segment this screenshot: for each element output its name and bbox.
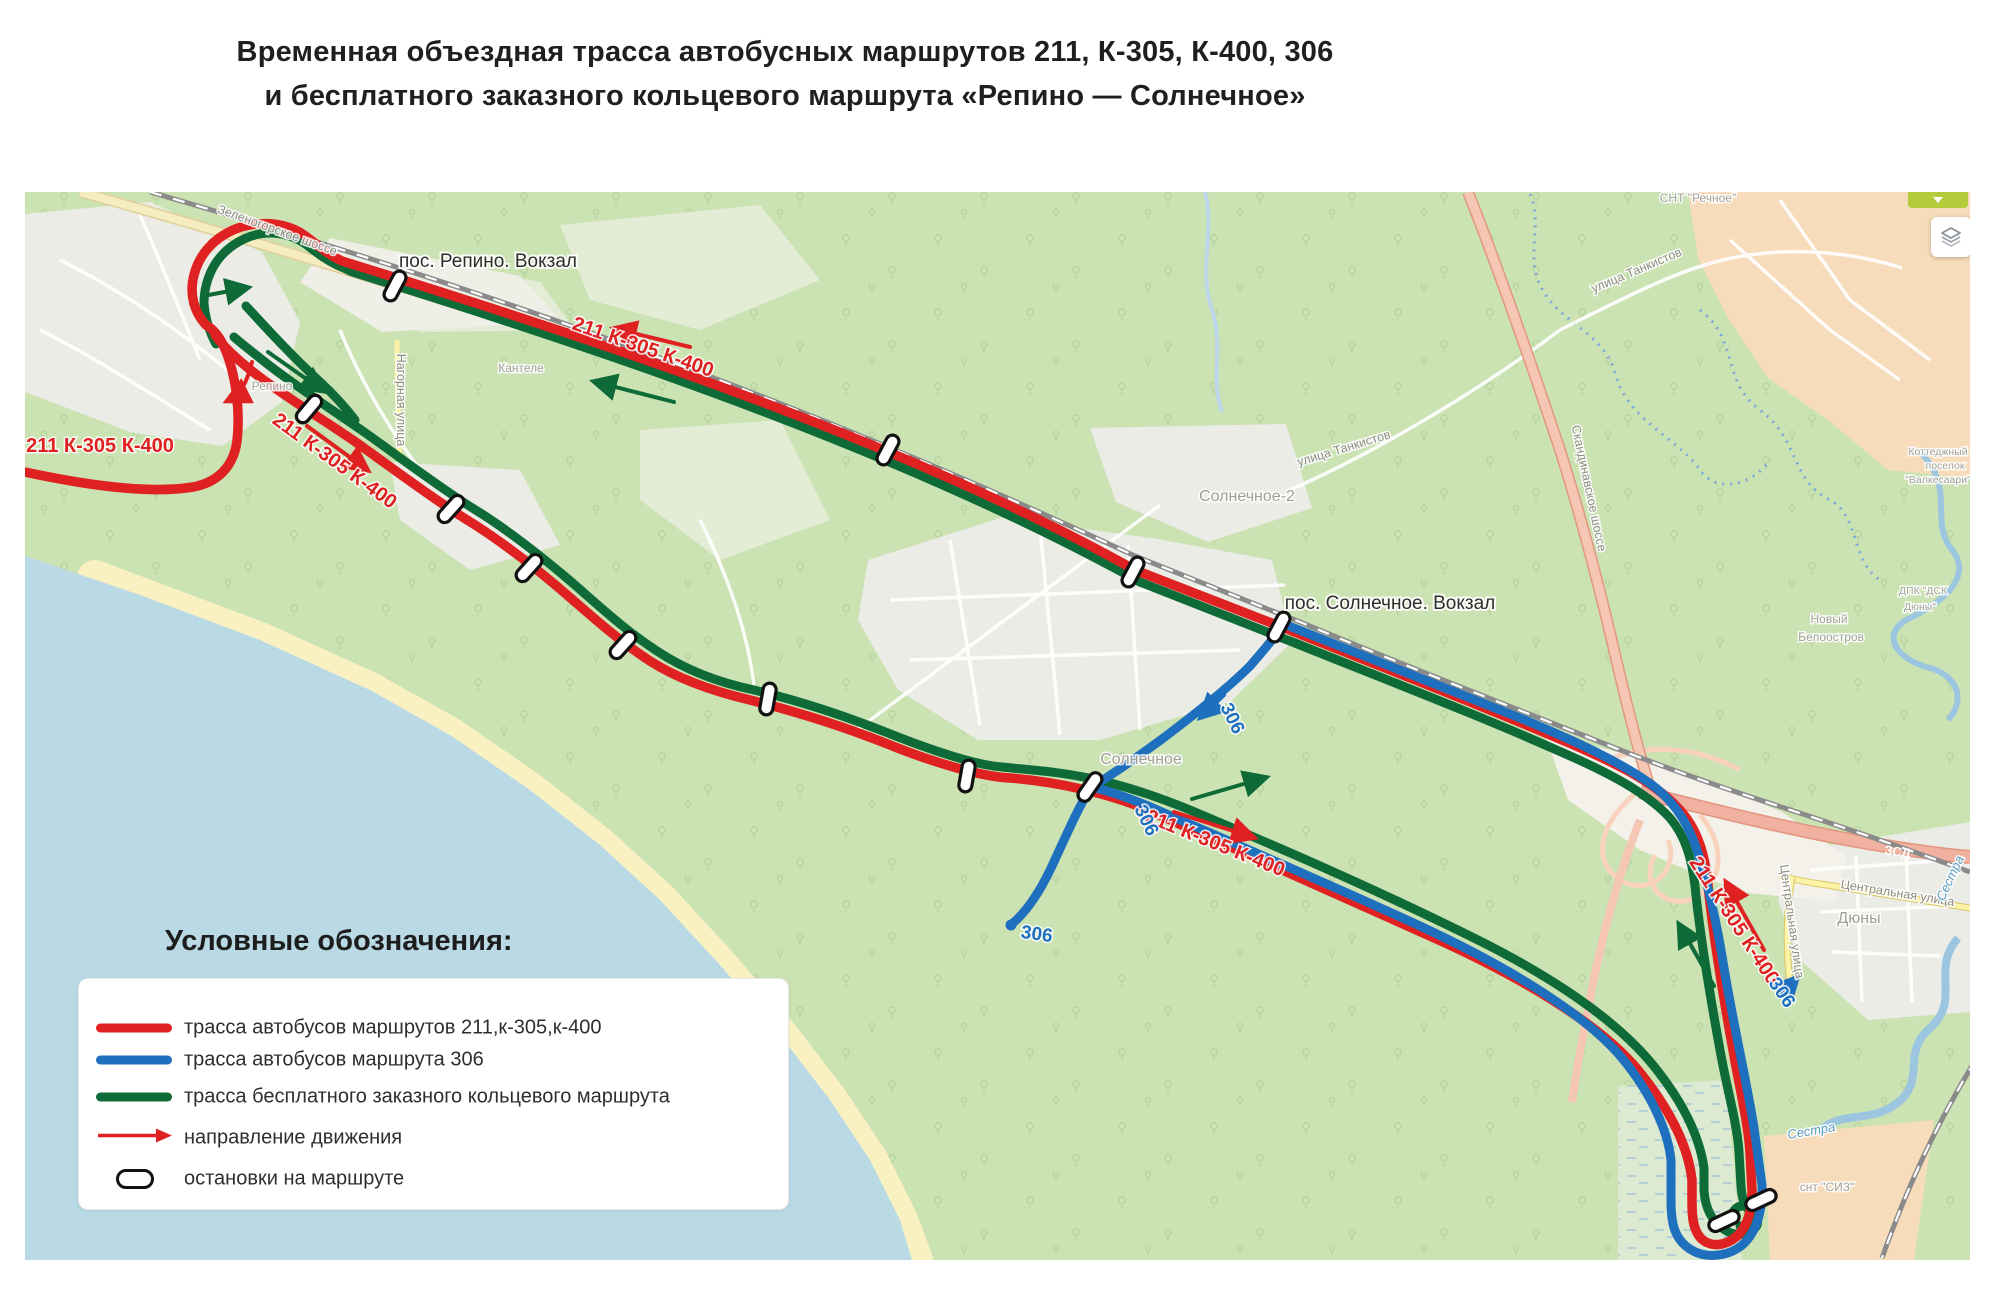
red-line-swatch (96, 1024, 172, 1033)
legend-item-stops: остановки на маршруте (79, 1167, 788, 1191)
legend-item-direction: направление движения (79, 1126, 788, 1150)
route-306-terminus-dot (1006, 920, 1017, 931)
label-place-snt-siz: снт "СИЗ" (1800, 1180, 1855, 1194)
label-place-beloostrov: Белоостров (1798, 630, 1864, 644)
label-place-novy: Новый (1810, 612, 1847, 626)
label-place-dpk-2: Дюны" (1904, 601, 1936, 613)
title-line-1: Временная объездная трасса автобусных ма… (0, 30, 1570, 74)
legend-item-label: остановки на маршруте (184, 1168, 404, 1191)
label-place-solnechnoe: Солнечное (1100, 751, 1182, 768)
legend-item-label: трасса бесплатного заказного кольцевого … (184, 1086, 670, 1109)
blue-line-swatch (96, 1056, 172, 1065)
label-place-repino: Репино (252, 379, 293, 393)
label-place-kottedzhny: Коттеджный (1908, 446, 1967, 458)
legend-item-red-route: трасса автобусов маршрутов 211,к-305,к-4… (79, 1016, 788, 1040)
map-collapse-button[interactable] (1908, 192, 1968, 208)
legend-item-label: трасса автобусов маршрута 306 (184, 1049, 484, 1072)
legend-item-blue-route: трасса автобусов маршрута 306 (79, 1048, 788, 1072)
label-place-duny: Дюны (1837, 910, 1880, 927)
label-place-dpk-1: ДПК "ДСК (1899, 585, 1948, 597)
direction-arrow-swatch (96, 1127, 174, 1150)
label-route-306-terminus: 306 (1020, 922, 1054, 947)
legend-item-label: направление движения (184, 1127, 402, 1150)
map-layers-button[interactable] (1931, 217, 1970, 257)
legend-item-green-route: трасса бесплатного заказного кольцевого … (79, 1085, 788, 1109)
layers-icon (1939, 225, 1963, 249)
label-place-snt-rechnoe: СНТ "Речное" (1660, 192, 1737, 205)
page: Временная объездная трасса автобусных ма… (0, 0, 2000, 1312)
label-place-poselok: поселок (1926, 460, 1965, 472)
label-station-solnechnoe: пос. Солнечное. Вокзал (1285, 593, 1496, 614)
legend-box: трасса автобусов маршрутов 211,к-305,к-4… (78, 978, 789, 1210)
label-place-solnechnoe2: Солнечное-2 (1199, 488, 1295, 505)
page-title: Временная объездная трасса автобусных ма… (0, 30, 1570, 118)
map-container: пос. Репино. Вокзалпос. Солнечное. Вокза… (25, 192, 1970, 1260)
title-line-2: и бесплатного заказного кольцевого маршр… (0, 74, 1570, 118)
label-place-valkesaari: "Валкесаари" (1905, 474, 1970, 486)
legend-heading: Условные обозначения: (165, 925, 513, 958)
green-line-swatch (96, 1093, 172, 1102)
legend-item-label: трасса автобусов маршрутов 211,к-305,к-4… (184, 1017, 602, 1040)
stop-pill-swatch (116, 1169, 154, 1189)
label-place-kantele: Кантеле (498, 361, 544, 375)
label-route-red-west: 211 К-305 К-400 (26, 435, 174, 457)
label-street-nagornaya: Нагорная улица (394, 354, 408, 447)
label-station-repino: пос. Репино. Вокзал (399, 251, 577, 272)
chevron-down-icon (1933, 197, 1943, 203)
